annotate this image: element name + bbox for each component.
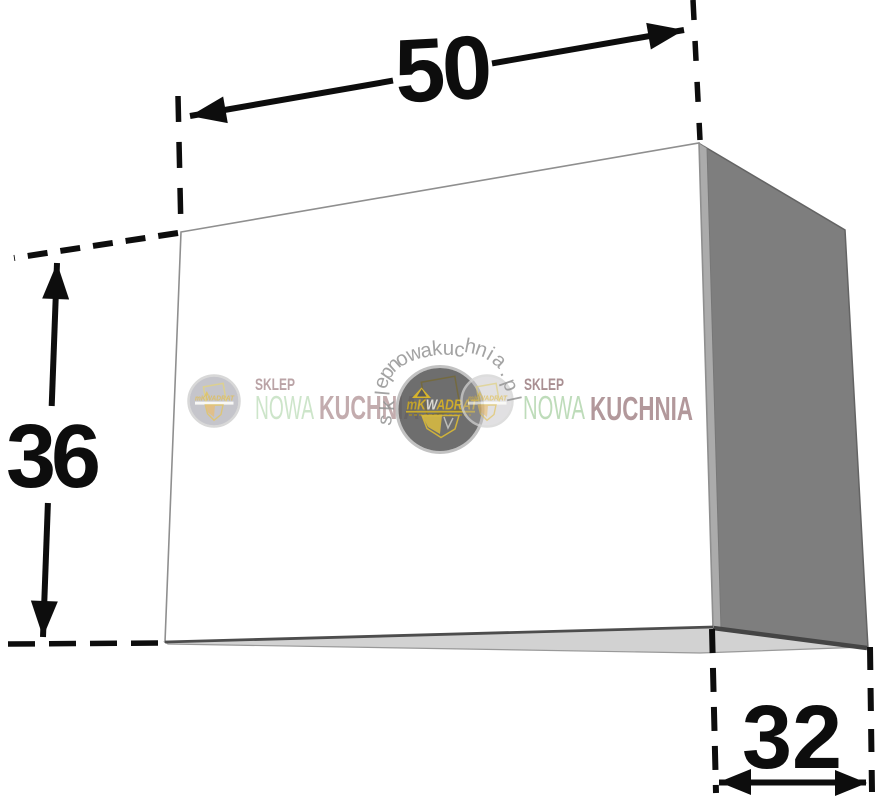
svg-text:KUCHNIA: KUCHNIA xyxy=(590,390,693,427)
svg-text:32: 32 xyxy=(742,688,842,788)
svg-text:k: k xyxy=(376,399,399,411)
svg-text:u: u xyxy=(443,337,454,360)
svg-text:50: 50 xyxy=(392,18,491,123)
svg-text:NOWA: NOWA xyxy=(523,389,585,426)
svg-text:36: 36 xyxy=(6,407,98,507)
svg-text:NOWA: NOWA xyxy=(255,389,314,426)
